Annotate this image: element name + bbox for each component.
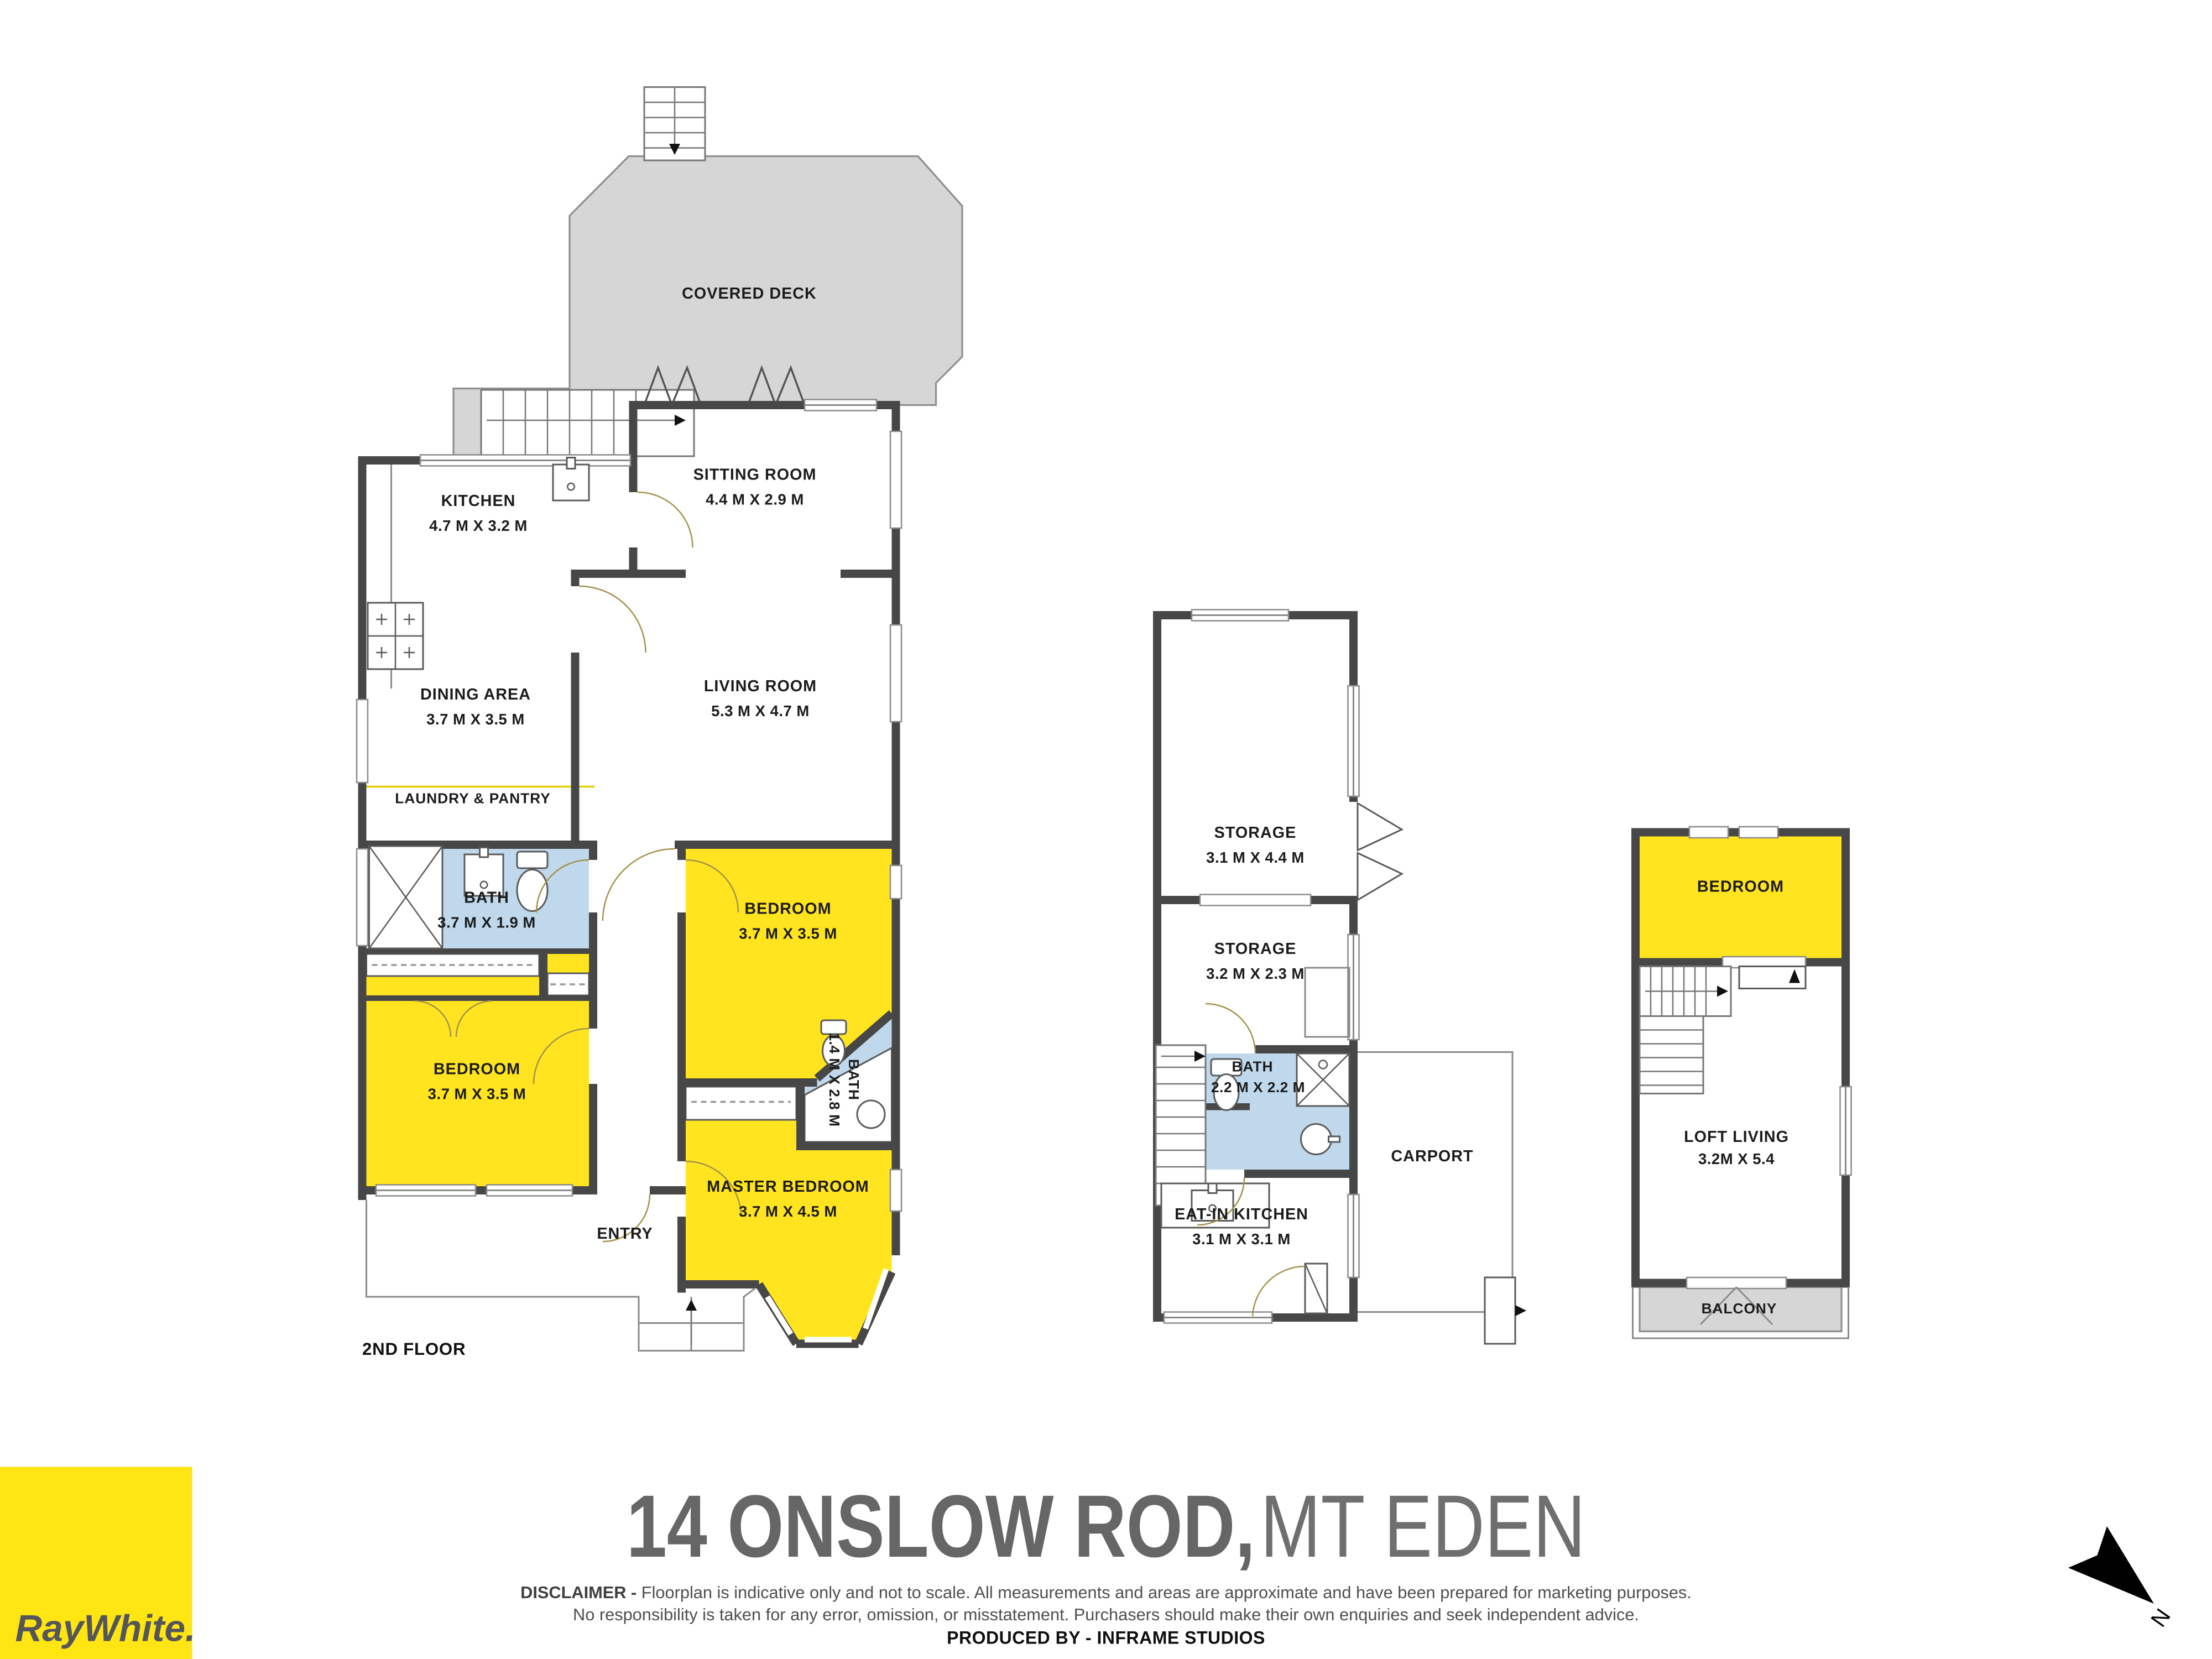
deck-stairs [644,87,705,161]
cooktop-icon [368,603,423,669]
disclaimer-label: DISCLAIMER - [520,1583,641,1602]
dining-dims: 3.7 M X 3.5 M [426,711,525,728]
master-label: MASTER BEDROOM [707,1178,869,1196]
carport-label: CARPORT [1391,1147,1473,1165]
sitting-room-label: SITTING ROOM [693,466,817,484]
address-secondary: MT EDEN [1260,1478,1585,1576]
north-arrow-icon: N [2068,1526,2176,1631]
loft-bedroom-label: BEDROOM [1697,878,1784,896]
dining-label: DINING AREA [420,686,531,703]
garage-floorplan: STORAGE 3.1 M X 4.4 M STORAGE 3.2 M X 2.… [1153,610,1526,1344]
footer: 14 ONSLOW ROD, MT EDEN DISCLAIMER - Floo… [520,1478,1692,1648]
closet-outline [1305,968,1349,1037]
garage-bath-label: BATH [1232,1058,1274,1075]
toilet-icon [517,852,547,911]
floorplan-canvas: COVERED DECK [0,0,2212,1659]
produced-by: PRODUCED BY - INFRAME STUDIOS [947,1628,1265,1648]
eat-in-kitchen-label: EAT-IN KITCHEN [1175,1206,1308,1223]
balcony-label: BALCONY [1702,1300,1777,1317]
bath-label: BATH [464,889,509,907]
living-dims: 5.3 M X 4.7 M [711,702,810,719]
room-loft-bedroom [1640,837,1841,964]
double-door-icon [1358,804,1402,900]
loft-floorplan: BEDROOM LOFT LIVING 3.2M X 5.4 BALCONY [1631,827,1851,1338]
bathroom-sink-icon [857,1100,885,1128]
living-label: LIVING ROOM [704,677,817,695]
kitchen-sink-icon [553,458,589,501]
svg-text:14 ONSLOW ROD, MT EDE: 14 ONSLOW ROD, MT EDEN [627,1478,1585,1576]
kitchen-label: KITCHEN [441,492,516,510]
disclaimer-text1: Floorplan is indicative only and not to … [641,1583,1692,1602]
disclaimer-line2: No responsibility is taken for any error… [573,1605,1639,1624]
raywhite-logo: RayWhite. [0,1467,196,1659]
kitchen-dims: 4.7 M X 3.2 M [429,517,528,534]
door-leaf [1305,1264,1327,1313]
covered-deck-label: COVERED DECK [682,285,817,302]
carport-outline [1358,1052,1526,1344]
master-dims: 3.7 M X 4.5 M [739,1203,837,1220]
loft-living-dims: 3.2M X 5.4 [1698,1150,1775,1167]
loft-living-label: LOFT LIVING [1684,1128,1789,1146]
ensuite-label: BATH [846,1059,862,1100]
storage-large-label: STORAGE [1214,824,1297,842]
address-title: 14 ONSLOW ROD, MT EDEN [627,1478,1585,1576]
kitchen-stairs [481,390,694,456]
north-label: N [2146,1604,2176,1631]
raywhite-logo-text: RayWhite. [15,1608,196,1650]
laundry-label: LAUNDRY & PANTRY [395,790,550,807]
floorplan-page: COVERED DECK [0,0,2212,1659]
shower-icon [369,846,443,948]
loft-stairs [1640,967,1731,1094]
storage-small-dims: 3.2 M X 2.3 M [1206,965,1305,982]
bedroom-front-label: BEDROOM [434,1061,520,1078]
address-primary: 14 ONSLOW ROD, [627,1478,1255,1576]
disclaimer-line1: DISCLAIMER - Floorplan is indicative onl… [520,1583,1692,1602]
storage-small-label: STORAGE [1214,940,1297,958]
bedroom-rear-dims: 3.7 M X 3.5 M [739,925,837,942]
floor-label: 2ND FLOOR [362,1339,466,1359]
bedroom-rear-label: BEDROOM [744,900,831,918]
entry-label: ENTRY [597,1225,653,1243]
storage-large-dims: 3.1 M X 4.4 M [1206,849,1305,866]
ensuite-dims: 1.4 M X 2.8 M [826,1033,843,1127]
loft-landing [1739,967,1806,989]
garage-stairs [1156,1045,1206,1206]
garage-bath-dims: 2.2 M X 2.2 M [1211,1079,1305,1095]
bath-dims: 3.7 M X 1.9 M [437,914,536,931]
eat-in-kitchen-dims: 3.1 M X 3.1 M [1192,1230,1291,1248]
bedroom-front-dims: 3.7 M X 3.5 M [428,1086,526,1103]
main-floorplan: COVERED DECK [357,87,962,1359]
sitting-room-dims: 4.4 M X 2.9 M [706,491,804,508]
